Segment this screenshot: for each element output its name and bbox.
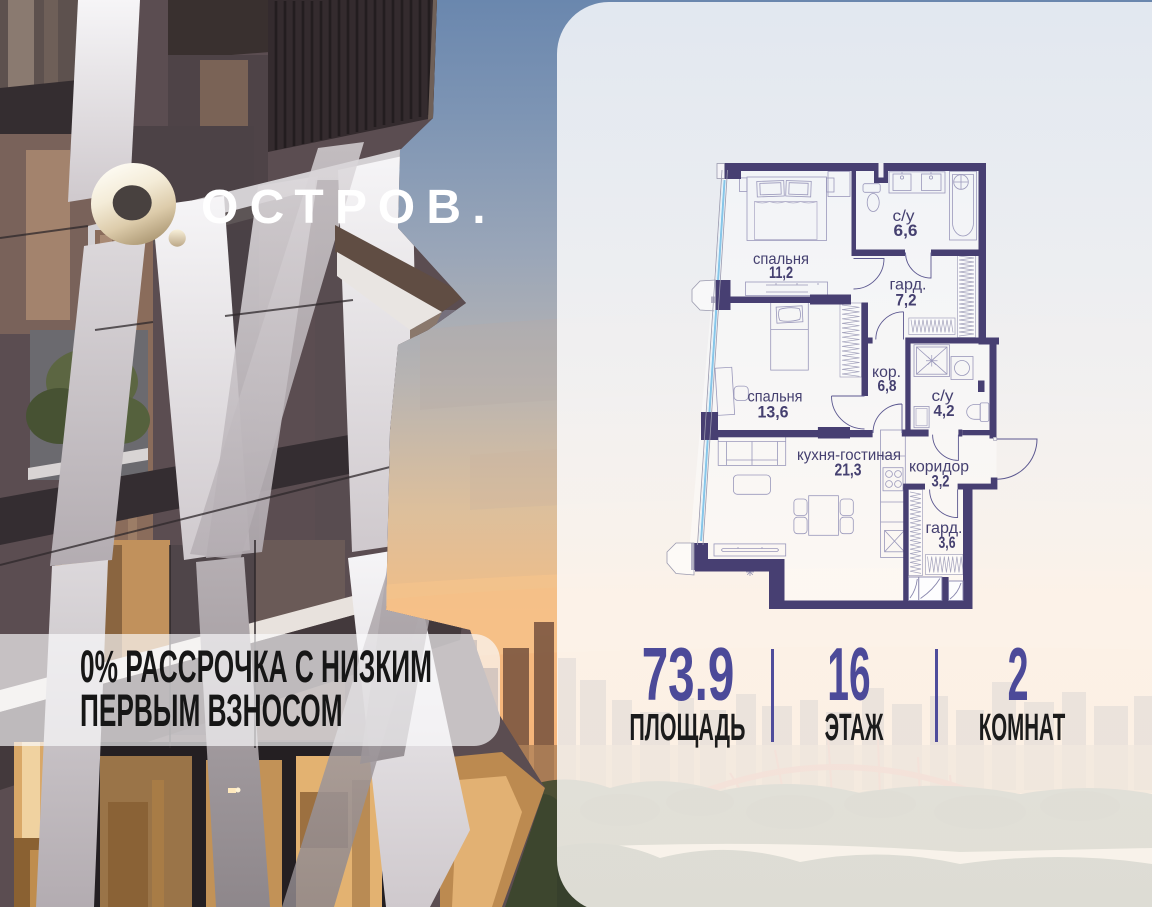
svg-text:13,6: 13,6 <box>758 403 789 422</box>
svg-text:11,2: 11,2 <box>769 263 793 282</box>
svg-text:7,2: 7,2 <box>896 291 917 310</box>
svg-text:4,2: 4,2 <box>934 403 955 420</box>
svg-text:3,2: 3,2 <box>932 473 950 491</box>
svg-text:3,6: 3,6 <box>939 534 956 552</box>
svg-text:6,8: 6,8 <box>878 378 897 395</box>
svg-text:6,6: 6,6 <box>894 221 918 240</box>
svg-text:ОСТРОВ.: ОСТРОВ. <box>201 181 497 234</box>
svg-text:21,3: 21,3 <box>835 460 862 480</box>
